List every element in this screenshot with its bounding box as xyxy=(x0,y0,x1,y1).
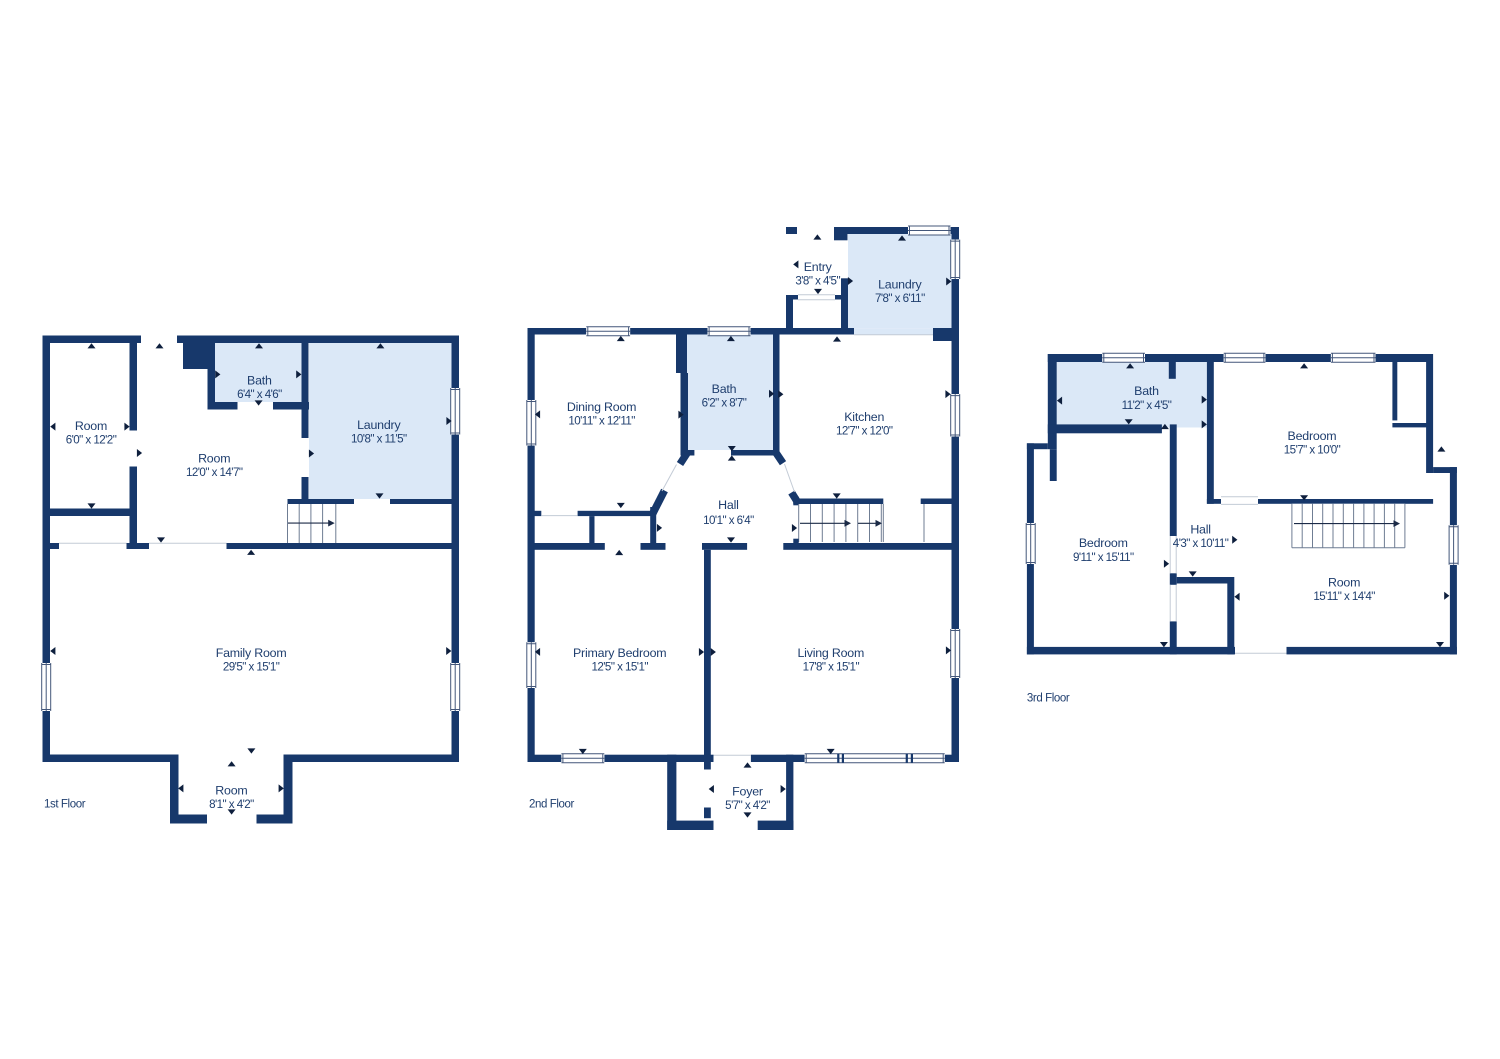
svg-text:12'0" x 14'7": 12'0" x 14'7" xyxy=(186,466,243,479)
svg-text:5'7" x 4'2": 5'7" x 4'2" xyxy=(725,799,770,812)
svg-text:10'11" x 12'11": 10'11" x 12'11" xyxy=(568,415,635,428)
svg-text:17'8" x 15'1": 17'8" x 15'1" xyxy=(803,661,860,674)
svg-text:11'2" x 4'5": 11'2" x 4'5" xyxy=(1122,399,1172,412)
svg-text:Laundry: Laundry xyxy=(357,418,401,432)
svg-text:29'5" x 15'1": 29'5" x 15'1" xyxy=(223,661,280,674)
svg-text:Room: Room xyxy=(75,419,107,433)
svg-text:Hall: Hall xyxy=(1190,523,1211,537)
svg-text:Room: Room xyxy=(198,452,230,466)
svg-text:8'1" x 4'2": 8'1" x 4'2" xyxy=(209,798,254,811)
svg-text:Room: Room xyxy=(1328,575,1360,589)
svg-text:12'7" x 12'0": 12'7" x 12'0" xyxy=(836,425,893,438)
svg-text:2nd Floor: 2nd Floor xyxy=(529,799,575,811)
svg-text:10'1" x 6'4": 10'1" x 6'4" xyxy=(703,514,754,527)
svg-text:Room: Room xyxy=(215,784,247,798)
svg-text:6'2" x 8'7": 6'2" x 8'7" xyxy=(702,397,747,410)
svg-text:15'11" x 14'4": 15'11" x 14'4" xyxy=(1313,590,1375,603)
svg-text:Bath: Bath xyxy=(247,373,272,387)
svg-text:9'11" x 15'11": 9'11" x 15'11" xyxy=(1073,551,1134,564)
svg-text:Foyer: Foyer xyxy=(732,785,763,799)
svg-text:4'3" x 10'11": 4'3" x 10'11" xyxy=(1173,537,1229,550)
svg-text:Laundry: Laundry xyxy=(878,278,922,292)
svg-text:Bath: Bath xyxy=(1134,384,1159,398)
svg-text:Hall: Hall xyxy=(718,498,739,512)
svg-text:Primary Bedroom: Primary Bedroom xyxy=(573,646,666,660)
svg-text:Bedroom: Bedroom xyxy=(1079,536,1128,550)
svg-text:Entry: Entry xyxy=(804,260,833,274)
svg-text:Bedroom: Bedroom xyxy=(1288,429,1337,443)
svg-text:1st Floor: 1st Floor xyxy=(44,799,86,811)
svg-text:Dining Room: Dining Room xyxy=(567,400,636,414)
svg-text:7'8" x 6'11": 7'8" x 6'11" xyxy=(875,292,925,305)
svg-text:3'8" x 4'5": 3'8" x 4'5" xyxy=(795,274,840,287)
svg-text:15'7" x 10'0": 15'7" x 10'0" xyxy=(1284,443,1341,456)
svg-text:Living Room: Living Room xyxy=(797,646,864,660)
svg-text:12'5" x 15'1": 12'5" x 15'1" xyxy=(591,661,648,674)
svg-text:Family Room: Family Room xyxy=(216,646,287,660)
svg-text:3rd Floor: 3rd Floor xyxy=(1027,693,1070,705)
svg-text:Kitchen: Kitchen xyxy=(844,410,884,424)
svg-text:Bath: Bath xyxy=(712,382,737,396)
svg-text:6'4" x 4'6": 6'4" x 4'6" xyxy=(237,388,282,401)
svg-text:10'8" x 11'5": 10'8" x 11'5" xyxy=(351,432,407,445)
svg-text:6'0" x 12'2": 6'0" x 12'2" xyxy=(66,434,117,447)
